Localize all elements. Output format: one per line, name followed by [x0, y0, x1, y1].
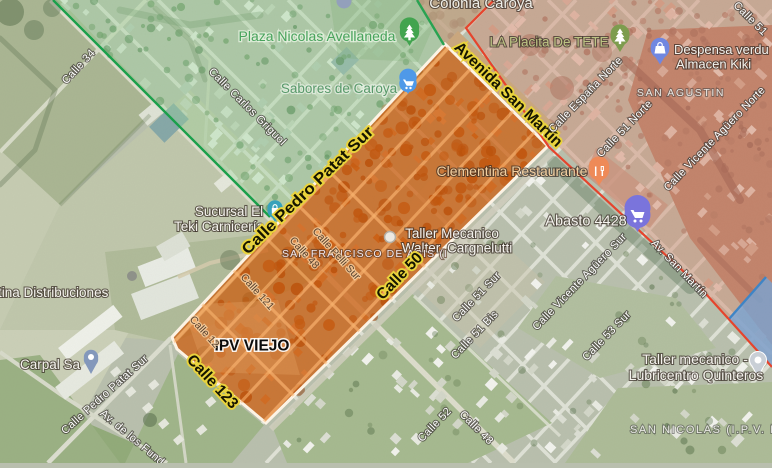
- svg-text:Almacen Kiki: Almacen Kiki: [676, 57, 751, 72]
- svg-text:Taller mecanico -: Taller mecanico -: [642, 351, 748, 367]
- svg-text:Sabores de Caroya: Sabores de Caroya: [281, 81, 398, 96]
- svg-text:Abasto 4428: Abasto 4428: [545, 214, 626, 230]
- svg-text:LA Placita De TETE: LA Placita De TETE: [489, 35, 608, 50]
- svg-text:Clementina Restaurante: Clementina Restaurante: [437, 163, 588, 179]
- svg-text:Despensa verdu: Despensa verdu: [674, 42, 769, 57]
- svg-text:Taller Mecanico: Taller Mecanico: [405, 226, 499, 241]
- svg-text:SAN NICOLAS (I.P.V. NU: SAN NICOLAS (I.P.V. NU: [630, 424, 772, 436]
- svg-text:IPV VIEJO: IPV VIEJO: [215, 338, 290, 355]
- svg-text:Colonia Caroya: Colonia Caroya: [429, 0, 533, 12]
- svg-text:SAN AGUSTIN: SAN AGUSTIN: [637, 87, 725, 99]
- svg-text:Argentina Distribuciones: Argentina Distribuciones: [0, 285, 109, 300]
- svg-text:Carpal Sa: Carpal Sa: [20, 357, 81, 372]
- svg-text:Sucursal El: Sucursal El: [195, 204, 263, 219]
- svg-text:Plaza Nicolas Avellaneda: Plaza Nicolas Avellaneda: [239, 28, 396, 44]
- svg-text:Teki Carnicería: Teki Carnicería: [174, 219, 265, 234]
- svg-text:Lubricentro Quinteros: Lubricentro Quinteros: [629, 367, 764, 383]
